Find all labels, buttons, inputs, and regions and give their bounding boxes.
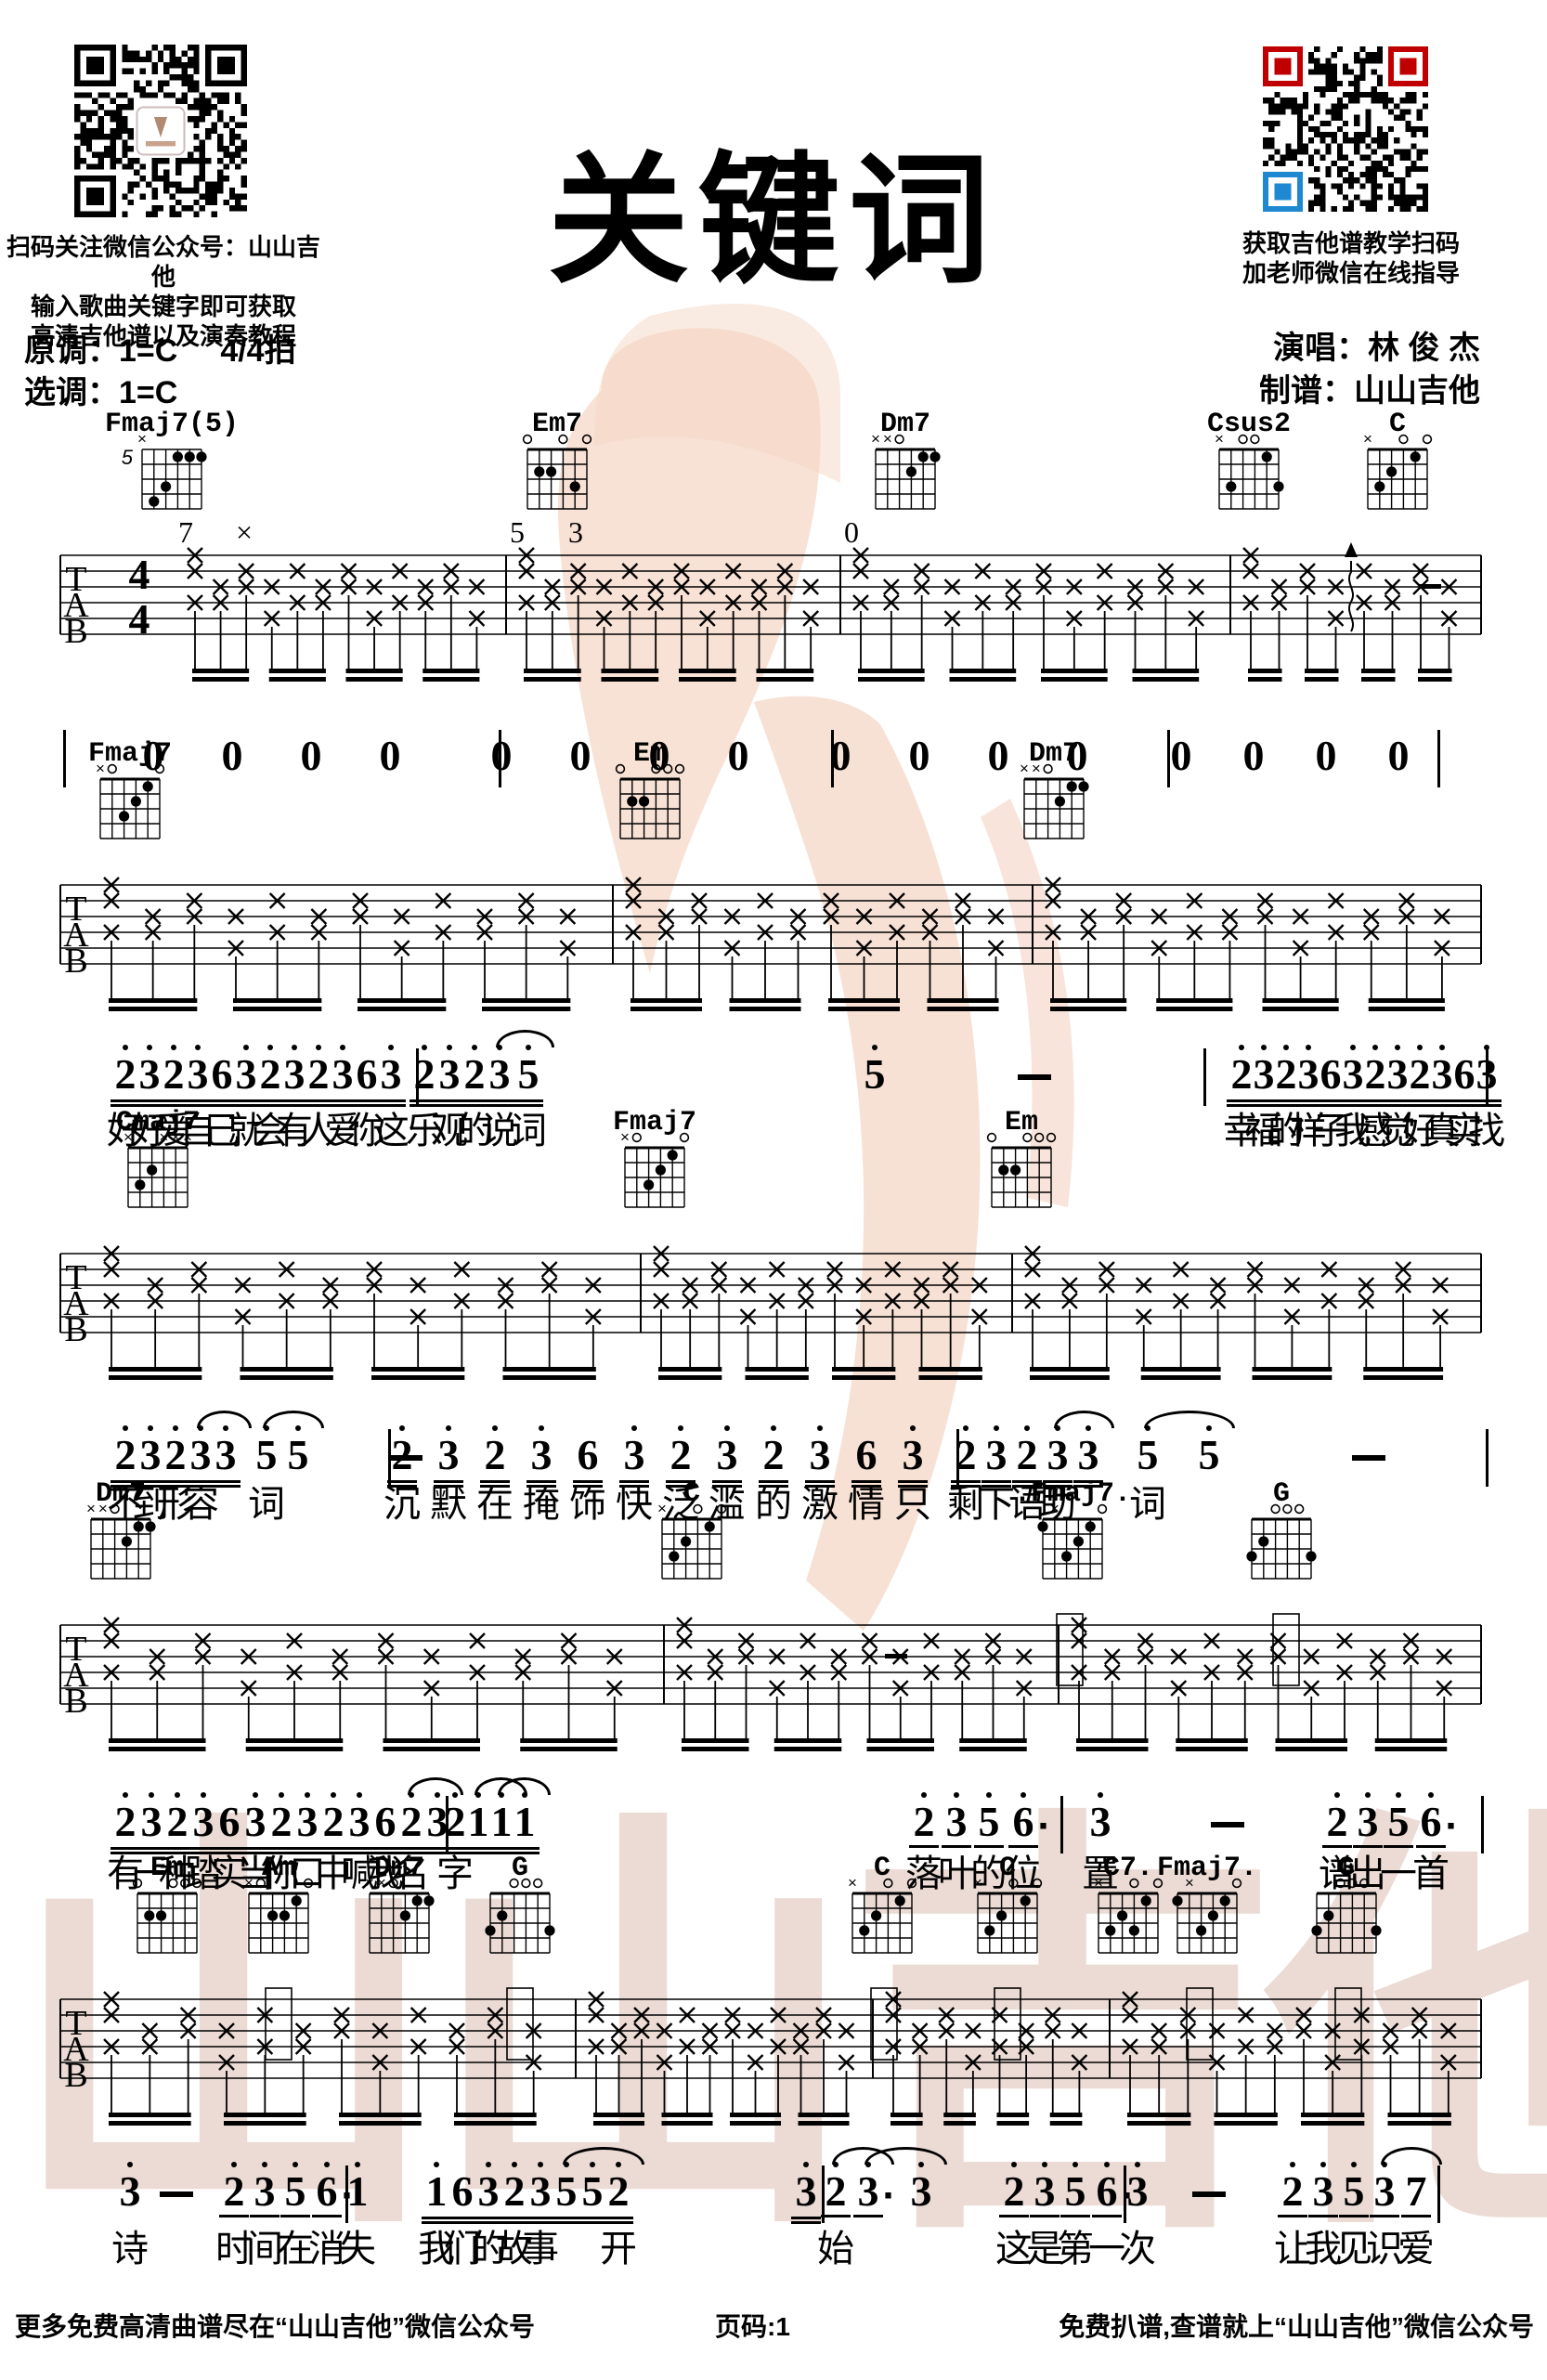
svg-text:×: × xyxy=(137,430,147,448)
note-number: 2 xyxy=(165,1801,189,1843)
note-number: 5 xyxy=(1342,2170,1366,2213)
slur-arc xyxy=(1144,1411,1235,1428)
melody-note: 3 xyxy=(250,2162,279,2213)
note-number: 5 xyxy=(554,2170,578,2213)
svg-text:×: × xyxy=(1185,1874,1194,1892)
note-number: 5 xyxy=(1386,1801,1410,1843)
melody-note: 0 xyxy=(1166,726,1196,777)
note-number: 3 xyxy=(808,1434,832,1476)
chord-label: Fmaj7. xyxy=(1157,1853,1257,1884)
note-number: 6 xyxy=(1419,1801,1443,1843)
note-number: 3 xyxy=(529,1434,553,1476)
melody-note: 3 xyxy=(115,2162,145,2213)
melody-note: 0 xyxy=(1384,726,1413,777)
tab-letter: B xyxy=(64,612,87,651)
note-number: 0 xyxy=(1241,735,1266,777)
note-number: 2 xyxy=(113,1434,137,1476)
credits: 演唱：林 俊 杰 制谱：山山吉他 xyxy=(1259,327,1480,412)
note-number: 3 xyxy=(214,1434,238,1476)
fret-annotation: 5 xyxy=(510,515,525,549)
melody-note: 5 xyxy=(974,1792,1004,1843)
note-number: 0 xyxy=(1065,735,1089,777)
slur-arc xyxy=(1054,1411,1114,1428)
tab-letter: B xyxy=(64,1310,87,1349)
lyric-syllable: 字 xyxy=(434,1853,476,1894)
note-number: 0 xyxy=(986,735,1010,777)
lyric-syllable: 置 xyxy=(1079,1853,1122,1894)
note-number: 5 xyxy=(580,2170,604,2213)
chord-diagram: Fmaj7.× xyxy=(1157,1853,1257,1953)
note-number: 2 xyxy=(761,1434,786,1476)
melody-note: 2 xyxy=(759,1425,788,1476)
note-number: 3 xyxy=(138,1434,162,1476)
svg-text:×: × xyxy=(1020,760,1029,777)
note-number: 3 xyxy=(243,1801,267,1843)
melody-note: 3 xyxy=(981,1425,1011,1476)
melody-barline xyxy=(63,730,66,787)
melody-note xyxy=(1018,1045,1047,1080)
melody-barline xyxy=(1486,1048,1488,1106)
note-number: 2 xyxy=(399,1801,423,1843)
fret-annotation: 3 xyxy=(568,515,583,549)
melody-note: 3 xyxy=(1073,1425,1103,1476)
lyric-syllable: 只 xyxy=(891,1484,934,1525)
chord-diagram: G xyxy=(485,1853,554,1953)
fret-annotation: 0 xyxy=(844,515,859,549)
note-number: 2 xyxy=(222,2170,246,2213)
melody-note: 3 xyxy=(906,2162,936,2213)
note-number: 5 xyxy=(254,1434,279,1476)
time-signature: 4 xyxy=(129,551,150,598)
melody-note: 2 xyxy=(480,1425,510,1476)
melody-note: 7 xyxy=(1401,2162,1431,2213)
slur-arc xyxy=(197,1411,252,1428)
dot-after: · xyxy=(1037,1803,1051,1850)
note-number: 2 xyxy=(113,1801,137,1843)
melody-note: 5 xyxy=(283,1425,313,1476)
lyric-syllable: 词 xyxy=(245,1484,288,1525)
svg-text:5: 5 xyxy=(122,446,134,469)
note-number: 2 xyxy=(390,1434,414,1476)
qr-right-caption-line1: 获取吉他谱教学扫码 xyxy=(1216,228,1486,258)
note-number: 2 xyxy=(1325,1801,1349,1843)
dash-note xyxy=(1018,1074,1051,1080)
chord-label: Em7 xyxy=(532,409,582,440)
svg-text:×: × xyxy=(86,1500,96,1517)
transcriber: 制谱：山山吉他 xyxy=(1259,370,1480,412)
note-number: 3 xyxy=(118,2170,142,2213)
note-number: 2 xyxy=(483,1434,507,1476)
melody-barline xyxy=(499,730,501,787)
note-number: 3 xyxy=(379,1053,403,1096)
melody-note: 5 xyxy=(1194,1425,1224,1476)
melody-barline xyxy=(1167,730,1170,787)
note-number: 3 xyxy=(295,1801,319,1843)
melody-barline xyxy=(822,2165,825,2223)
svg-text:×: × xyxy=(871,430,880,448)
dash-note xyxy=(160,2191,193,2197)
note-number: 0 xyxy=(1386,735,1410,777)
melody-note: 2 xyxy=(1322,1792,1352,1843)
melody-note: 0 xyxy=(138,726,168,777)
note-number: 6 xyxy=(854,1434,878,1476)
fret-annotation: 7 xyxy=(178,515,193,549)
melody-note: 5 xyxy=(860,1045,890,1096)
original-key: 原调：1=C xyxy=(24,333,177,369)
melody-note: 5 xyxy=(1060,2162,1090,2213)
lyric-syllable: 位 xyxy=(1002,1853,1045,1894)
tab-letter: B xyxy=(64,1682,87,1721)
tab-system-2: Fmaj7×EmDm7××TAB xyxy=(0,736,1547,1024)
lyric-syllable: 事 xyxy=(519,2229,562,2269)
note-number: 6 xyxy=(217,1801,241,1843)
note-number: 5 xyxy=(977,1801,1001,1843)
melody-note: 6· xyxy=(1008,1792,1038,1843)
melody-barline xyxy=(345,2165,348,2223)
melody-barline xyxy=(1437,2165,1440,2223)
melody-note: 6 xyxy=(851,1425,881,1476)
melody-note: 0 xyxy=(1239,726,1268,777)
melody-note: 2 xyxy=(951,1425,981,1476)
tab-staff: TAB xyxy=(60,1625,1481,1721)
guitar-tab-sheet: 山山吉他 扫码关注微信公众号：山山吉他 输入歌曲关键字即可获取 高清吉他谱以及演… xyxy=(0,0,1547,2380)
note-number: 3 xyxy=(1356,1801,1380,1843)
note-number: 3 xyxy=(1088,1801,1112,1843)
melody-note xyxy=(1352,1425,1382,1461)
note-number: 2 xyxy=(321,1801,345,1843)
melody-note: 3 xyxy=(526,1425,556,1476)
melody-note: 2 xyxy=(666,1425,695,1476)
melody-barline xyxy=(831,730,834,787)
note-number: 5 xyxy=(1136,1434,1160,1476)
note-number: 6 xyxy=(1095,2170,1119,2213)
slur-arc xyxy=(1381,2147,1442,2165)
lyric-syllable: 首 xyxy=(1410,1853,1452,1894)
lyric-syllable: 的 xyxy=(752,1484,795,1525)
melody-barline xyxy=(446,1796,448,1853)
chord-label: Em xyxy=(1005,1107,1038,1138)
note-number: 3 xyxy=(1046,1434,1070,1476)
chord-diagram: C× xyxy=(1363,409,1431,509)
melody-note: 0 xyxy=(825,726,855,777)
lyric-syllable: 情 xyxy=(845,1484,888,1525)
note-number: 3 xyxy=(794,2170,818,2213)
melody-note: 3 xyxy=(1123,2162,1152,2213)
note-number: 3 xyxy=(191,1801,215,1843)
chord-diagram: Csus2× xyxy=(1207,409,1291,509)
lyric-syllable: 在 xyxy=(474,1484,516,1525)
dash-note xyxy=(1211,1822,1244,1827)
melody-note xyxy=(160,2162,189,2197)
lyric-syllable: 词 xyxy=(507,1111,550,1151)
melody-note: 0 xyxy=(1062,726,1092,777)
melody-note: 3 xyxy=(376,1045,406,1096)
melody-barline xyxy=(1481,1796,1484,1853)
note-number: 1 xyxy=(513,1801,537,1843)
tab-staff: TAB xyxy=(60,1999,1481,2095)
melody-note: 3 xyxy=(712,1425,742,1476)
note-number: 6 xyxy=(373,1801,397,1843)
melody-note: 3 xyxy=(791,2162,821,2213)
lyric-syllable: 名 xyxy=(390,1853,433,1894)
melody-note: 3 xyxy=(434,1425,463,1476)
melody-note: 3 xyxy=(1353,1792,1383,1843)
melody-barline xyxy=(1203,1048,1206,1106)
key-info: 原调：1=C4/4拍 选调：1=C xyxy=(24,331,296,414)
slur-arc xyxy=(563,2147,644,2165)
melody-note: 6· xyxy=(1416,1792,1446,1843)
note-number: 0 xyxy=(141,735,165,777)
tab-staff: TAB44 xyxy=(60,551,1481,651)
lyric-syllable: 快 xyxy=(613,1484,656,1525)
tab-system-1: Fmaj7(5)5×Em7Dm7××Csus2×C×TAB447×530 xyxy=(0,407,1547,695)
tab-letter: B xyxy=(64,942,87,981)
dash-note xyxy=(1192,2191,1226,2197)
tab-staff: TAB xyxy=(60,1254,1481,1349)
note-number: 1 xyxy=(345,2170,370,2213)
melody-note: 2 xyxy=(219,2162,249,2213)
note-number: 5 xyxy=(1063,2170,1087,2213)
note-number: 0 xyxy=(299,735,323,777)
chord-diagram: Fmaj7× xyxy=(613,1107,696,1207)
lyric-syllable: 找 xyxy=(1465,1111,1508,1151)
melody-note: 2 xyxy=(909,1792,939,1843)
chord-diagram: Fmaj7(5)5× xyxy=(105,409,239,509)
melody-note: 0 xyxy=(217,726,247,777)
note-number: 3 xyxy=(1033,2170,1057,2213)
melody-note: 0 xyxy=(644,726,674,777)
note-number: 6 xyxy=(315,2170,339,2213)
footer-right-text: 免费扒谱,查谱就上“山山吉他”微信公众号 xyxy=(1059,2307,1534,2344)
melody-note: 0 xyxy=(723,726,753,777)
melody-note: 3 xyxy=(619,1425,649,1476)
note-number: 0 xyxy=(1314,735,1338,777)
melody-barline xyxy=(388,1429,391,1487)
melody-note: 0 xyxy=(904,726,934,777)
melody-note: 3 xyxy=(1030,2162,1059,2213)
note-number: 3 xyxy=(944,1801,968,1843)
note-number: 3 xyxy=(1076,1434,1100,1476)
footer-left-text: 更多免费高清曲谱尽在“山山吉他”微信公众号 xyxy=(15,2307,535,2344)
qr-code-right xyxy=(1263,46,1428,212)
lyric-syllable: 饰 xyxy=(566,1484,609,1525)
lyric-syllable: 激 xyxy=(799,1484,841,1525)
note-number: 2 xyxy=(669,1434,693,1476)
melody-barline xyxy=(1437,730,1440,787)
note-number: 2 xyxy=(1002,2170,1026,2213)
note-number: 2 xyxy=(269,1801,293,1843)
qr-right-caption-line2: 加老师微信在线指导 xyxy=(1216,258,1486,288)
svg-text:×: × xyxy=(1215,430,1224,448)
note-number: 3 xyxy=(487,1053,512,1096)
lyric-syllable: 沉 xyxy=(381,1484,423,1525)
svg-text:×: × xyxy=(620,1128,630,1146)
note-number: 2 xyxy=(163,1434,188,1476)
melody-note: 1 xyxy=(510,1792,539,1843)
melody-note: 3 xyxy=(1085,1792,1115,1843)
dot-after: · xyxy=(1445,1803,1459,1850)
melody-note xyxy=(1211,1792,1241,1827)
note-number: 0 xyxy=(378,735,402,777)
lyric-syllable: 默 xyxy=(427,1484,470,1525)
melody-note: 5 xyxy=(1384,1792,1413,1843)
note-number: 3 xyxy=(1125,2170,1150,2213)
lyric-syllable: 词 xyxy=(1126,1484,1169,1525)
note-number: 3 xyxy=(622,1434,646,1476)
melody-note: 6· xyxy=(1092,2162,1122,2213)
note-number: 0 xyxy=(568,735,592,777)
note-number: 5 xyxy=(516,1053,540,1096)
melody-note: 3 xyxy=(1370,2162,1399,2213)
melody-note: 3 xyxy=(898,1425,928,1476)
qr-left-caption-line2: 输入歌曲关键字即可获取 xyxy=(4,292,323,321)
note-number: 3 xyxy=(715,1434,739,1476)
note-number: 5 xyxy=(863,1053,887,1096)
note-number: 5 xyxy=(1197,1434,1221,1476)
note-number: 2 xyxy=(824,2170,848,2213)
page-number: 页码:1 xyxy=(715,2307,790,2344)
singer: 演唱：林 俊 杰 xyxy=(1259,327,1480,370)
lyric-syllable: 爱 xyxy=(1395,2229,1437,2269)
melody-note: 5 xyxy=(280,2162,310,2213)
note-number: 3 xyxy=(1311,2170,1335,2213)
note-number: 6 xyxy=(1011,1801,1035,1843)
note-number: 3 xyxy=(188,1434,213,1476)
lyric-syllable: 滥 xyxy=(706,1484,748,1525)
melody-note: 5 xyxy=(513,1045,543,1096)
chord-diagram: G xyxy=(1246,1478,1316,1579)
note-number: 3 xyxy=(253,2170,277,2213)
note-number: 3 xyxy=(528,2170,552,2213)
melody-note: 3 xyxy=(1043,1425,1072,1476)
lyric-syllable: 始 xyxy=(814,2229,857,2269)
lyric-syllable: 助 xyxy=(1036,1484,1079,1525)
note-number: 3 xyxy=(901,1434,925,1476)
melody-note: 2 xyxy=(604,2162,633,2213)
melody-barline xyxy=(1486,1429,1488,1487)
melody-barline xyxy=(416,1048,419,1106)
note-number: 6 xyxy=(450,2170,474,2213)
melody-note: 3· xyxy=(853,2162,883,2213)
melody-note: 6· xyxy=(312,2162,342,2213)
note-number: 6 xyxy=(576,1434,600,1476)
note-number: 0 xyxy=(647,735,671,777)
melody-note: 3 xyxy=(1308,2162,1338,2213)
time-signature: 4 xyxy=(129,595,150,643)
melody-barline xyxy=(956,1429,959,1487)
svg-text:×: × xyxy=(96,760,105,777)
note-number: 2 xyxy=(1280,2170,1305,2213)
svg-text:×: × xyxy=(1363,430,1372,448)
dot-after: · xyxy=(882,2173,896,2219)
note-number: 2 xyxy=(462,1053,487,1096)
note-number: 3 xyxy=(139,1801,163,1843)
chord-diagram: Em xyxy=(988,1107,1056,1207)
melody-note: 2 xyxy=(821,2162,851,2213)
note-number: 3 xyxy=(1372,2170,1397,2213)
note-number: 3 xyxy=(476,2170,500,2213)
lyric-syllable: 开 xyxy=(597,2229,640,2269)
note-number: 7 xyxy=(1404,2170,1428,2213)
tab-letter: B xyxy=(64,2056,87,2095)
note-number: 2 xyxy=(502,2170,526,2213)
note-number: 0 xyxy=(907,735,931,777)
note-number: 5 xyxy=(286,1434,310,1476)
melody-note: 3 xyxy=(485,1045,514,1096)
melody-note: 5 xyxy=(1339,2162,1369,2213)
note-number: 2 xyxy=(912,1801,936,1843)
dash-note xyxy=(1352,1455,1385,1461)
chord-diagram: Dm7×× xyxy=(871,409,941,509)
melody-note: 6 xyxy=(573,1425,603,1476)
melody-note: 3 xyxy=(211,1425,240,1476)
beat-signature: 4/4拍 xyxy=(220,333,295,369)
melody-note: 0 xyxy=(487,726,516,777)
qr-right-caption: 获取吉他谱教学扫码 加老师微信在线指导 xyxy=(1216,228,1486,288)
note-number: 2 xyxy=(1015,1434,1039,1476)
selected-key: 选调：1=C xyxy=(24,372,296,414)
slur-arc xyxy=(496,1030,554,1047)
melody-note: 0 xyxy=(375,726,405,777)
note-number: 3 xyxy=(437,1053,461,1096)
lyric-syllable: 诗 xyxy=(109,2229,151,2269)
note-number: 5 xyxy=(283,2170,307,2213)
melody-note: 0 xyxy=(1311,726,1341,777)
melody-barline xyxy=(1060,1796,1063,1853)
note-number: 0 xyxy=(489,735,513,777)
lyric-syllable: 失 xyxy=(336,2229,379,2269)
lyric-syllable: 容 xyxy=(179,1484,222,1525)
note-number: 2 xyxy=(606,2170,630,2213)
slur-arc xyxy=(263,1411,324,1428)
svg-text:×: × xyxy=(1032,760,1041,777)
note-number: 3 xyxy=(856,2170,880,2213)
svg-text:×: × xyxy=(848,1874,857,1892)
melody-barline xyxy=(1124,2165,1126,2223)
melody-note xyxy=(1192,2162,1222,2197)
melody-note: 0 xyxy=(565,726,595,777)
lyric-syllable: 泛 xyxy=(659,1484,702,1525)
melody-note: 5 xyxy=(252,1425,281,1476)
melody-note: 2 xyxy=(1012,1425,1042,1476)
melody-note: 5 xyxy=(1133,1425,1163,1476)
note-number: 3 xyxy=(909,2170,933,2213)
fret-annotation: × xyxy=(236,515,253,549)
melody-note: 3 xyxy=(942,1792,971,1843)
melody-note: 2 xyxy=(387,1425,417,1476)
lyric-syllable: 次 xyxy=(1116,2229,1159,2269)
note-number: 3 xyxy=(984,1434,1008,1476)
lyric-syllable: 掩 xyxy=(520,1484,563,1525)
melody-note: 0 xyxy=(983,726,1013,777)
svg-text:×: × xyxy=(883,430,892,448)
melody-note: 0 xyxy=(296,726,326,777)
note-number: 3 xyxy=(436,1434,461,1476)
melody-note: 3 xyxy=(805,1425,835,1476)
melody-note: 2 xyxy=(1278,2162,1307,2213)
chord-diagram: Em7 xyxy=(524,409,591,509)
note-number: 0 xyxy=(726,735,750,777)
melody-note: 2 xyxy=(999,2162,1029,2213)
note-number: 0 xyxy=(1169,735,1193,777)
note-number: 1 xyxy=(424,2170,448,2213)
note-number: 0 xyxy=(220,735,244,777)
note-number: 3 xyxy=(347,1801,371,1843)
